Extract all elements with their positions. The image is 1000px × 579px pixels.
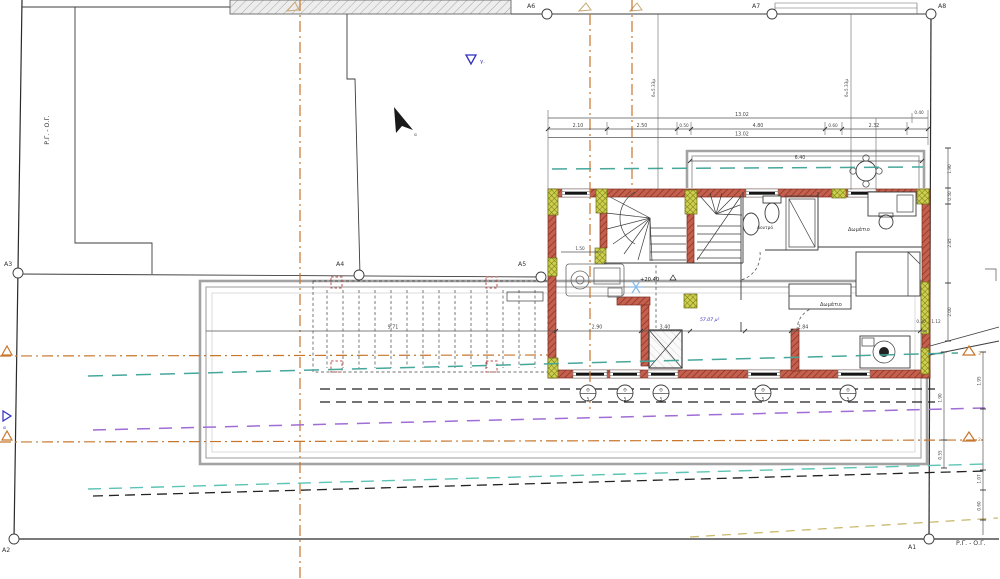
svg-text:5: 5 bbox=[847, 397, 850, 402]
opening-tag: Θ5 bbox=[653, 385, 669, 402]
dim-lower: 0.55 bbox=[938, 450, 943, 460]
axis-line-orange bbox=[0, 440, 985, 442]
dim-total2: 13.02 bbox=[735, 132, 749, 138]
existing-building-hatch bbox=[230, 0, 511, 14]
drawing-canvas: Λουτρό Δωμάτιο Δωμάτιο +20.40 57.07 μ² 1… bbox=[0, 0, 1000, 579]
sink-icon bbox=[743, 213, 759, 235]
grid-bubble-a6 bbox=[542, 9, 552, 19]
grid-bubble-a3 bbox=[13, 268, 23, 278]
level-triangle-icon bbox=[670, 275, 676, 280]
delta-marker-icon bbox=[2, 431, 12, 440]
section-arrow-icon bbox=[3, 411, 11, 421]
section-arrow-label: α bbox=[3, 426, 6, 431]
north-arrow-label: α bbox=[414, 133, 417, 138]
neighbor-building-outline-left bbox=[75, 7, 152, 274]
balcony-railing bbox=[687, 151, 924, 188]
level-label: +20.40 bbox=[640, 277, 659, 283]
washer bbox=[860, 336, 910, 368]
grid-label-a1: A1 bbox=[908, 544, 916, 551]
svg-text:5: 5 bbox=[587, 397, 590, 402]
floor-below-dashed bbox=[93, 471, 985, 496]
column bbox=[595, 248, 606, 264]
nabla-marker-icon bbox=[466, 55, 476, 64]
dim-right: 2.00 bbox=[947, 307, 952, 317]
dim-balcony: 6.40 bbox=[795, 155, 806, 161]
dim-seg: 0.60 bbox=[828, 123, 838, 128]
dim-right: 1.90 bbox=[947, 164, 952, 174]
axis-line-orange bbox=[0, 355, 548, 356]
column bbox=[921, 348, 929, 374]
dim-stair: 1.50 bbox=[575, 246, 585, 251]
opening-tag: Θ5 bbox=[840, 385, 856, 402]
bed bbox=[856, 252, 920, 296]
delta-marker-label: 2 bbox=[978, 437, 981, 443]
utility-line-teal bbox=[88, 464, 985, 489]
dim-lower: 1.90 bbox=[938, 393, 943, 403]
dim-seg: 4.80 bbox=[753, 123, 764, 129]
delta-marker-icon bbox=[2, 346, 12, 355]
grid-label-a4: A4 bbox=[336, 261, 344, 268]
opening-tag: Θ5 bbox=[580, 385, 596, 402]
grid-label-a6: A6 bbox=[527, 3, 535, 10]
pergola-below-dashed bbox=[313, 281, 548, 372]
dim-right: 0.50 bbox=[947, 191, 952, 201]
floor-plan-sheet: Λουτρό Δωμάτιο Δωμάτιο +20.40 57.07 μ² 1… bbox=[0, 0, 1000, 579]
dim-interior: 2.84 bbox=[798, 325, 809, 331]
dim-corner: 0.40 bbox=[914, 110, 924, 115]
area-label: 57.07 μ² bbox=[700, 317, 720, 323]
dim-seg: 2.50 bbox=[637, 123, 648, 129]
grid-label-a2: A2 bbox=[2, 547, 10, 554]
planter bbox=[507, 292, 543, 301]
window bbox=[562, 189, 590, 197]
dim-small: 1.12 bbox=[931, 319, 941, 324]
column-below-dashed bbox=[486, 277, 497, 288]
toilet-icon bbox=[763, 196, 781, 223]
dim-interior: 3.40 bbox=[660, 325, 671, 331]
dim-interior: 9.71 bbox=[388, 325, 399, 331]
neighbor-building-outline-right bbox=[347, 14, 360, 275]
stair-left bbox=[606, 192, 686, 261]
grid-label-a5: A5 bbox=[518, 261, 526, 268]
dim-small: 0.30 bbox=[916, 319, 926, 324]
column bbox=[596, 189, 607, 213]
column bbox=[921, 282, 929, 334]
grid-bubble-a2 bbox=[9, 534, 19, 544]
floor-plan: Λουτρό Δωμάτιο Δωμάτιο +20.40 57.07 μ² bbox=[548, 151, 930, 378]
stair-right bbox=[697, 193, 742, 260]
room-label-bedroom2: Δωμάτιο bbox=[820, 301, 842, 308]
svg-text:5: 5 bbox=[660, 397, 663, 402]
window bbox=[748, 370, 780, 378]
room-label-bathroom: Λουτρό bbox=[757, 224, 773, 231]
shower bbox=[786, 196, 818, 250]
column bbox=[548, 258, 557, 276]
column bbox=[832, 189, 846, 198]
dim-seg: 0.50 bbox=[679, 123, 689, 128]
boundary-label-left: Ρ.Γ. - Ο.Γ. bbox=[44, 115, 51, 145]
wall-left bbox=[548, 189, 556, 378]
grid-label-a7: A7 bbox=[752, 3, 760, 10]
setback-label: δ=5.33μ bbox=[651, 79, 656, 97]
dim-total: 13.02 bbox=[735, 112, 749, 118]
grid-bubble-a1 bbox=[924, 534, 934, 544]
svg-text:5: 5 bbox=[762, 397, 765, 402]
grid-label-a3: A3 bbox=[4, 261, 12, 268]
room-label-bedroom1: Δωμάτιο bbox=[848, 226, 870, 233]
roof-arrow-icon bbox=[579, 3, 591, 11]
desk bbox=[868, 192, 916, 229]
annotations: A1 A2 A3 A4 A5 A6 A7 A8 Ρ.Γ. - Ο.Γ. Ρ.Γ.… bbox=[2, 3, 986, 554]
setback-label: δ=5.33μ bbox=[844, 79, 849, 97]
nabla-label: γ. bbox=[480, 59, 485, 65]
column bbox=[548, 189, 558, 215]
dim-seg: 2.10 bbox=[573, 123, 584, 129]
column bbox=[684, 294, 697, 308]
north-arrow-icon bbox=[394, 107, 413, 133]
delta-marker-label: 3 bbox=[978, 351, 981, 357]
opening-tag: Θ5 bbox=[617, 385, 633, 402]
grid-bubble-a7 bbox=[767, 9, 777, 19]
svg-text:5: 5 bbox=[624, 397, 627, 402]
balcony-table bbox=[856, 161, 876, 181]
window bbox=[838, 370, 870, 378]
grid-bubble-a5 bbox=[536, 272, 546, 282]
grid-bubble-a4 bbox=[354, 270, 364, 280]
utility-line-purple bbox=[93, 408, 985, 430]
dim-far: 1.07 bbox=[977, 474, 982, 484]
column-below-dashed bbox=[331, 361, 342, 372]
grid-label-a8: A8 bbox=[938, 3, 946, 10]
door-swing bbox=[741, 252, 760, 280]
dim-interior: 2.90 bbox=[592, 325, 603, 331]
dim-seg: 2.32 bbox=[869, 123, 880, 129]
column bbox=[917, 189, 929, 204]
boundary-label-bottom: Ρ.Γ. - Ο.Γ. bbox=[956, 540, 986, 547]
column bbox=[548, 358, 558, 378]
window bbox=[648, 370, 678, 378]
grid-bubble-a8 bbox=[926, 9, 936, 19]
shaft bbox=[649, 330, 682, 368]
dim-far: 0.60 bbox=[977, 501, 982, 511]
grade-line-tan bbox=[690, 518, 998, 537]
corner-bracket bbox=[985, 269, 996, 281]
column bbox=[685, 190, 697, 214]
grid-line-a3-a5 bbox=[18, 274, 545, 277]
dim-right: 2.85 bbox=[947, 238, 952, 248]
window bbox=[610, 370, 640, 378]
column-below-dashed bbox=[486, 361, 497, 372]
opening-tag: Θ5 bbox=[755, 385, 771, 402]
dim-far: 1.95 bbox=[977, 376, 982, 386]
column-below-dashed bbox=[331, 277, 342, 288]
